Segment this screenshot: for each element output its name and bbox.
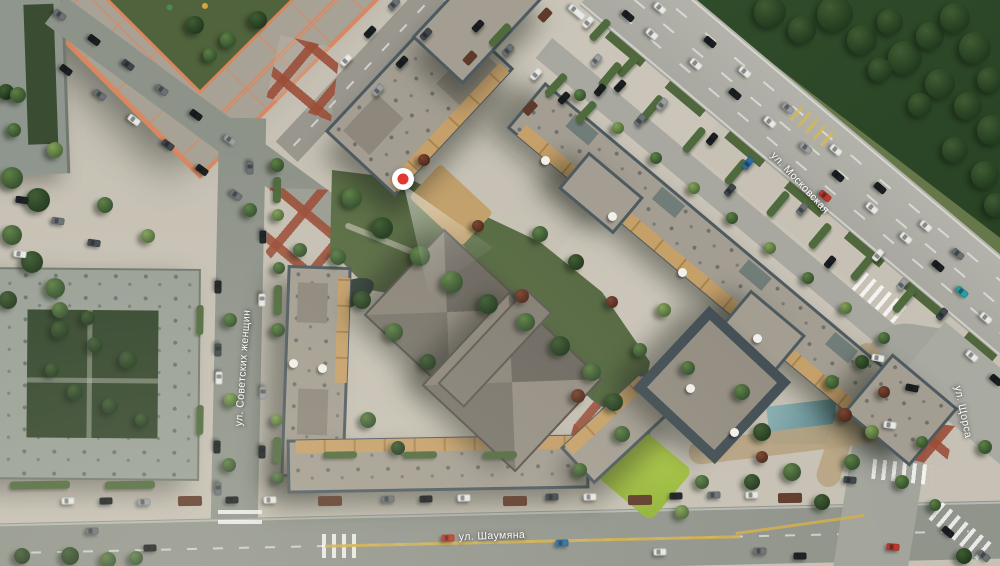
tree xyxy=(223,313,237,327)
tree xyxy=(753,423,771,441)
tree xyxy=(888,41,922,75)
car xyxy=(263,496,276,503)
tree xyxy=(877,9,903,35)
tree xyxy=(353,291,371,309)
road-sovetskikh-zhenshchin xyxy=(211,118,266,521)
tree xyxy=(67,384,83,400)
tree xyxy=(203,48,217,62)
umbrella-icon xyxy=(318,364,327,373)
hedge xyxy=(196,305,204,335)
tree xyxy=(2,225,22,245)
car xyxy=(137,498,150,505)
tree xyxy=(10,87,26,103)
car xyxy=(745,491,758,498)
tree xyxy=(954,92,982,120)
car xyxy=(258,445,265,458)
car xyxy=(441,534,454,541)
hedge xyxy=(403,451,437,459)
tree xyxy=(515,289,529,303)
car xyxy=(246,161,253,174)
car xyxy=(87,239,101,248)
car xyxy=(886,543,899,551)
crosswalk xyxy=(218,506,262,524)
car xyxy=(99,497,112,504)
tree xyxy=(293,243,307,257)
tree xyxy=(571,389,585,403)
planter xyxy=(318,496,342,506)
tree xyxy=(102,398,118,414)
tree xyxy=(783,463,801,481)
car xyxy=(143,544,156,551)
tree xyxy=(942,137,968,163)
tree xyxy=(249,11,267,29)
tree xyxy=(650,152,662,164)
hedge xyxy=(273,177,281,203)
tree xyxy=(916,22,944,50)
car xyxy=(669,492,682,499)
tree xyxy=(272,472,284,484)
terrace-wood xyxy=(335,278,351,383)
tree xyxy=(978,440,992,454)
tree xyxy=(568,254,584,270)
tree xyxy=(270,158,284,172)
tree xyxy=(825,375,839,389)
tree xyxy=(614,426,630,442)
tree xyxy=(844,454,860,470)
tree xyxy=(764,242,776,254)
tree xyxy=(273,262,285,274)
car xyxy=(258,293,265,306)
tree xyxy=(51,321,69,339)
car xyxy=(259,386,266,399)
street-label-shaumyana: ул. Шаумяна xyxy=(459,529,526,543)
tree xyxy=(243,203,257,217)
tree xyxy=(420,354,436,370)
tree xyxy=(788,16,816,44)
tree xyxy=(342,188,362,208)
tree xyxy=(129,551,143,565)
tree xyxy=(222,458,236,472)
car xyxy=(214,482,221,495)
tree xyxy=(865,425,879,439)
tree xyxy=(61,547,79,565)
viewpoint-marker[interactable] xyxy=(392,168,414,190)
tree xyxy=(695,475,709,489)
tree xyxy=(135,413,149,427)
tree xyxy=(657,303,671,317)
tree xyxy=(385,323,403,341)
car xyxy=(15,196,29,205)
tree xyxy=(612,122,624,134)
planter xyxy=(778,493,802,503)
car xyxy=(794,553,807,560)
car xyxy=(214,280,221,293)
tree xyxy=(606,296,618,308)
tree xyxy=(688,182,700,194)
tree xyxy=(840,302,852,314)
car xyxy=(457,494,470,501)
tree xyxy=(847,25,877,55)
tree xyxy=(360,412,376,428)
tree xyxy=(814,494,830,510)
viewpoint-marker-dot xyxy=(398,174,409,185)
tree xyxy=(472,220,484,232)
hedge xyxy=(274,285,283,315)
playground-equipment xyxy=(201,2,209,10)
car xyxy=(51,217,65,226)
tree xyxy=(550,336,570,356)
tree xyxy=(929,499,941,511)
car xyxy=(214,343,221,356)
tree xyxy=(675,505,689,519)
car xyxy=(555,539,568,546)
umbrella-icon xyxy=(686,384,695,393)
tree xyxy=(97,197,113,213)
car xyxy=(843,476,857,484)
car xyxy=(259,230,266,243)
tree xyxy=(971,161,999,189)
tree xyxy=(330,249,346,265)
roof-notch xyxy=(343,94,403,155)
tree xyxy=(271,323,285,337)
tree xyxy=(734,384,750,400)
planter xyxy=(178,496,202,506)
tree xyxy=(916,436,928,448)
tree xyxy=(532,226,548,242)
tree xyxy=(47,142,63,158)
tree xyxy=(681,361,695,375)
tree xyxy=(940,3,970,33)
tree xyxy=(633,343,647,357)
tree xyxy=(220,32,236,48)
planter xyxy=(503,496,527,506)
tree xyxy=(977,67,1000,93)
tree xyxy=(956,548,972,564)
umbrella-icon xyxy=(678,268,687,277)
umbrella-icon xyxy=(541,156,550,165)
tree xyxy=(573,463,587,477)
hedge xyxy=(105,481,155,490)
tree xyxy=(45,278,65,298)
tree xyxy=(119,351,137,369)
tree xyxy=(959,32,991,64)
playground-equipment xyxy=(166,3,174,11)
hedge xyxy=(483,451,517,459)
tree xyxy=(925,69,955,99)
tree xyxy=(756,451,768,463)
tree xyxy=(14,548,30,564)
car xyxy=(93,88,108,101)
tree xyxy=(878,332,890,344)
car xyxy=(545,493,558,500)
tree xyxy=(878,386,890,398)
tree xyxy=(186,16,204,34)
tree xyxy=(517,313,535,331)
car xyxy=(653,548,666,555)
car xyxy=(419,495,432,502)
tree xyxy=(583,363,601,381)
tree xyxy=(7,123,21,137)
tree xyxy=(141,229,155,243)
roof-notch xyxy=(297,388,329,435)
tree xyxy=(977,115,1000,145)
car xyxy=(213,440,220,453)
tree xyxy=(87,337,103,353)
tree xyxy=(868,58,892,82)
car xyxy=(707,491,720,498)
tree xyxy=(574,89,586,101)
tree xyxy=(744,474,760,490)
car xyxy=(583,493,596,500)
masterplan-map[interactable]: ул. Советских женщин ул. Московская ул. … xyxy=(0,0,1000,566)
car xyxy=(61,497,74,504)
hedge xyxy=(323,451,357,459)
tree xyxy=(895,475,909,489)
tree xyxy=(838,408,852,422)
tree xyxy=(855,355,869,369)
tree xyxy=(52,302,68,318)
tree xyxy=(478,294,498,314)
hedge xyxy=(273,437,281,463)
umbrella-icon xyxy=(608,212,617,221)
tree xyxy=(272,209,284,221)
tree xyxy=(81,311,95,325)
tree xyxy=(1,167,23,189)
hedge xyxy=(10,480,70,489)
car xyxy=(754,548,767,555)
hedge xyxy=(196,405,204,435)
roof-notch xyxy=(297,282,328,323)
planter xyxy=(628,495,652,505)
car xyxy=(215,371,222,384)
car xyxy=(85,527,98,534)
car xyxy=(381,495,394,502)
tree xyxy=(418,154,430,166)
umbrella-icon xyxy=(289,359,298,368)
tree xyxy=(271,414,283,426)
tree xyxy=(908,93,932,117)
tree xyxy=(371,217,393,239)
umbrella-icon xyxy=(730,428,739,437)
tree xyxy=(100,552,116,566)
tree xyxy=(605,393,623,411)
umbrella-icon xyxy=(753,334,762,343)
tree xyxy=(802,272,814,284)
building-existing-southwest xyxy=(0,267,201,481)
tree xyxy=(726,212,738,224)
car xyxy=(225,496,238,503)
car xyxy=(13,250,27,259)
tree xyxy=(45,363,59,377)
tree xyxy=(26,188,50,212)
building-c-south xyxy=(287,434,590,493)
